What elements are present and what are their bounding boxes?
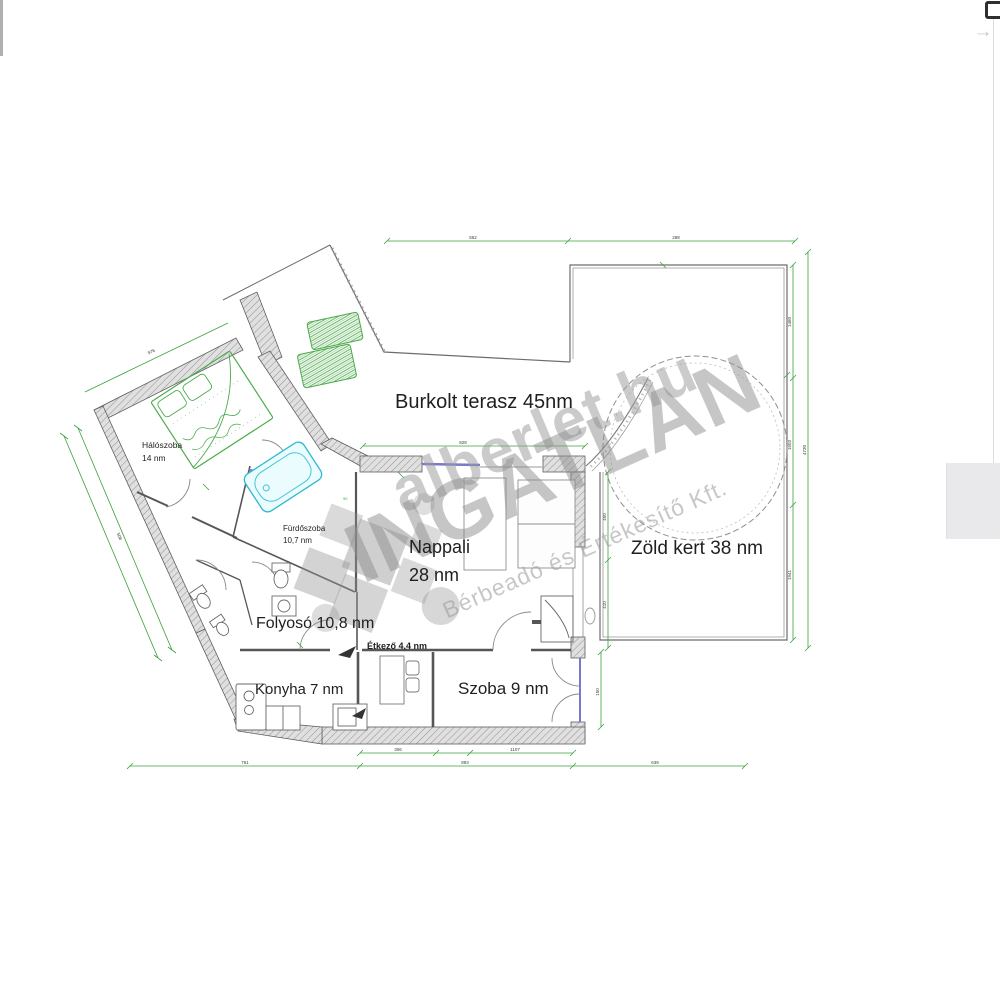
bathtub: [242, 439, 325, 514]
svg-text:976: 976: [147, 348, 156, 356]
label-living-1: Nappali: [409, 537, 470, 557]
svg-text:90: 90: [343, 496, 348, 501]
svg-text:893: 893: [461, 760, 469, 765]
terrace-rug: [297, 312, 363, 388]
svg-text:562: 562: [469, 235, 477, 240]
svg-text:4730: 4730: [802, 444, 807, 455]
svg-text:1941: 1941: [787, 569, 792, 580]
svg-text:1107: 1107: [510, 747, 520, 752]
svg-text:508: 508: [116, 532, 124, 541]
svg-text:306: 306: [394, 747, 402, 752]
label-terrace: Burkolt terasz 45nm: [395, 391, 573, 413]
svg-text:288: 288: [672, 235, 680, 240]
label-bath-1: Fürdőszoba: [283, 524, 326, 533]
photo-viewer: 562 288 1460 1503 1941 4730 508 976 828 …: [0, 0, 1000, 993]
label-bedroom-2: 14 nm: [142, 453, 166, 463]
fullscreen-icon[interactable]: [985, 1, 1000, 19]
svg-text:1460: 1460: [787, 316, 792, 327]
label-bath-2: 10,7 nm: [283, 536, 312, 545]
previous-image-edge[interactable]: [0, 0, 3, 56]
svg-text:761: 761: [241, 760, 249, 765]
bed: [151, 351, 273, 469]
svg-text:150: 150: [595, 688, 600, 696]
svg-text:1503: 1503: [787, 439, 792, 450]
floorplan-drawing: 562 288 1460 1503 1941 4730 508 976 828 …: [0, 0, 1000, 993]
label-bedroom-1: Hálószoba: [142, 440, 182, 450]
svg-text:410: 410: [602, 601, 607, 609]
next-arrow-icon[interactable]: →: [971, 20, 995, 44]
label-hallway: Folyosó 10,8 nm: [256, 615, 374, 632]
next-image-preview[interactable]: [946, 463, 1000, 539]
label-kitchen: Konyha 7 nm: [255, 681, 343, 698]
svg-text:639: 639: [651, 760, 659, 765]
svg-text:450: 450: [602, 513, 607, 521]
label-room: Szoba 9 nm: [458, 679, 549, 698]
label-dining: Étkező 4,4 nm: [367, 641, 427, 651]
floorplan-photo[interactable]: 562 288 1460 1503 1941 4730 508 976 828 …: [0, 0, 1000, 993]
label-garden: Zöld kert 38 nm: [631, 538, 763, 559]
label-living-2: 28 nm: [409, 565, 459, 585]
dining-furniture: [380, 656, 419, 704]
image-right-border: [993, 16, 994, 464]
